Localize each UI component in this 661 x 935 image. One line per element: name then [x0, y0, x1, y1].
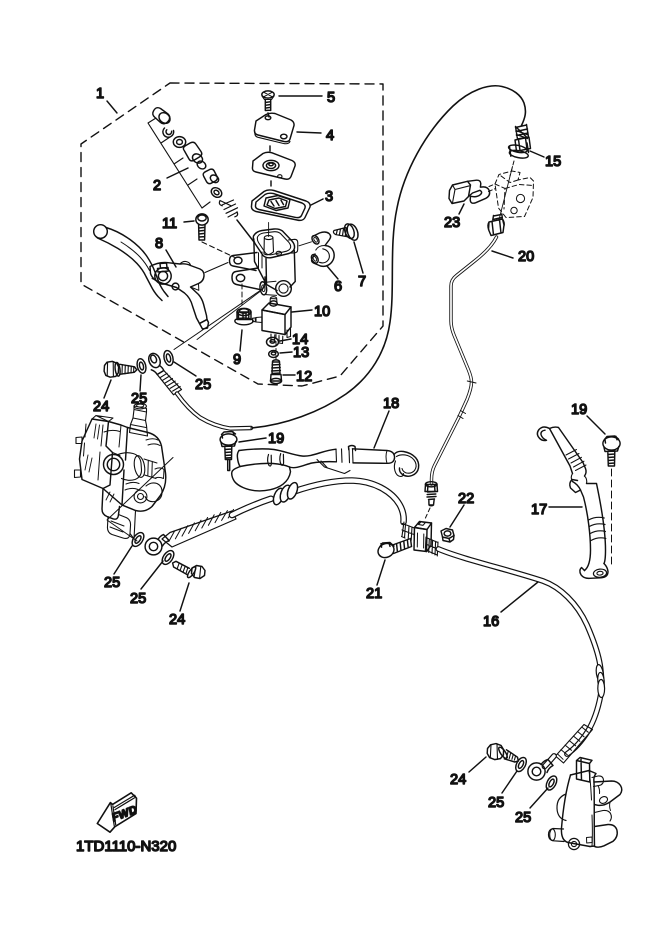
svg-text:24: 24	[450, 772, 466, 788]
svg-text:25: 25	[195, 377, 211, 393]
svg-text:1: 1	[96, 86, 104, 102]
svg-text:7: 7	[358, 274, 366, 290]
svg-text:23: 23	[444, 215, 460, 231]
svg-text:24: 24	[93, 399, 109, 415]
svg-text:20: 20	[518, 249, 534, 265]
svg-text:8: 8	[155, 236, 163, 252]
svg-text:6: 6	[334, 279, 342, 295]
svg-text:25: 25	[515, 810, 531, 826]
svg-text:1TD1110-N320: 1TD1110-N320	[76, 838, 176, 855]
svg-text:4: 4	[326, 128, 334, 144]
svg-text:21: 21	[366, 586, 382, 602]
svg-text:3: 3	[325, 189, 333, 205]
svg-text:13: 13	[293, 345, 309, 361]
svg-text:15: 15	[545, 154, 561, 170]
svg-text:10: 10	[314, 304, 330, 320]
svg-text:5: 5	[327, 90, 335, 106]
svg-text:22: 22	[458, 491, 474, 507]
svg-text:2: 2	[153, 178, 161, 194]
svg-text:25: 25	[130, 591, 146, 607]
svg-text:25: 25	[104, 575, 120, 591]
svg-text:16: 16	[483, 614, 499, 630]
svg-text:19: 19	[268, 431, 284, 447]
svg-text:11: 11	[162, 216, 177, 232]
svg-text:19: 19	[571, 402, 587, 418]
svg-text:24: 24	[169, 612, 185, 628]
svg-text:9: 9	[233, 352, 241, 368]
svg-text:17: 17	[531, 502, 547, 518]
svg-text:18: 18	[383, 396, 399, 412]
svg-text:12: 12	[296, 369, 312, 385]
svg-text:25: 25	[488, 795, 504, 811]
